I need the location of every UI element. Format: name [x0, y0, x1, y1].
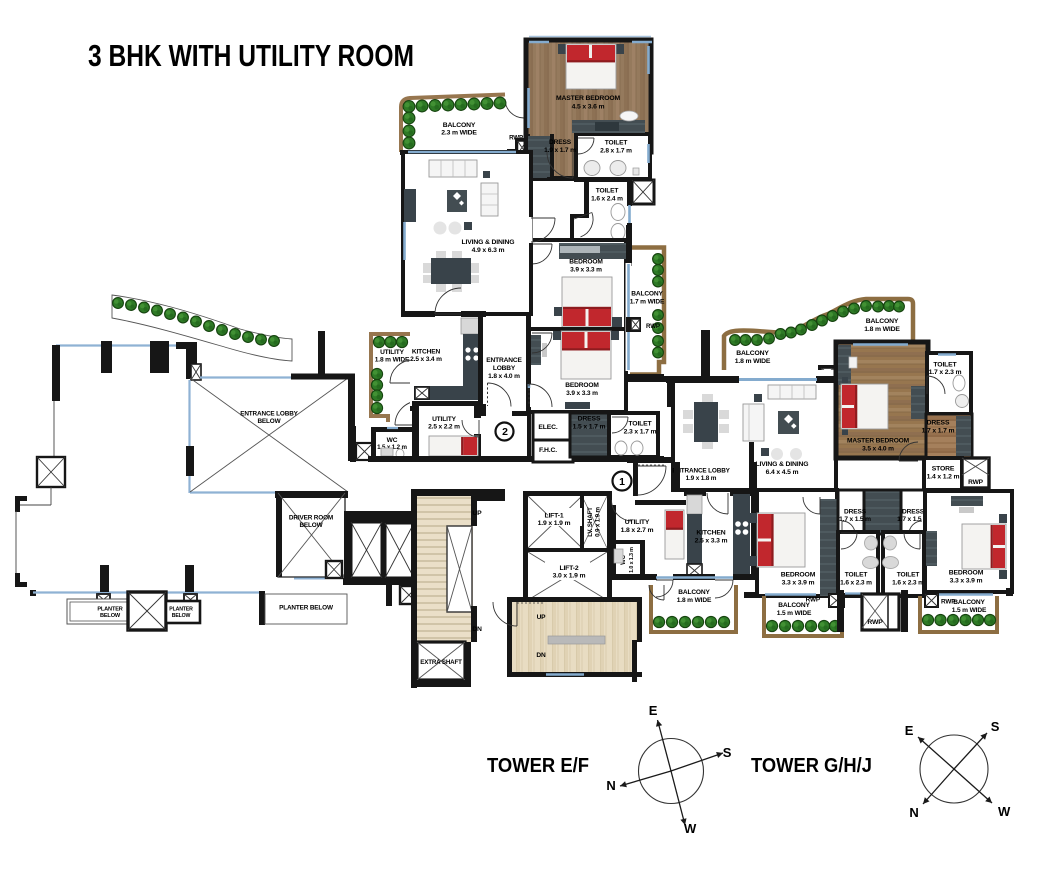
svg-text:1.5 m WIDE: 1.5 m WIDE: [952, 607, 987, 614]
svg-text:2.3 x 1.7 m: 2.3 x 1.7 m: [624, 429, 657, 436]
svg-text:RWP: RWP: [867, 619, 883, 626]
svg-text:TOILET: TOILET: [897, 572, 920, 579]
svg-text:WC: WC: [387, 437, 398, 444]
svg-text:3 BHK WITH UTILITY ROOM: 3 BHK WITH UTILITY ROOM: [88, 38, 414, 73]
svg-text:DRESS: DRESS: [549, 139, 572, 146]
svg-text:BALCONY: BALCONY: [866, 318, 899, 325]
svg-text:DRESS: DRESS: [927, 420, 950, 427]
svg-text:KITCHEN: KITCHEN: [412, 349, 441, 356]
svg-text:3.0 x 1.9 m: 3.0 x 1.9 m: [553, 573, 586, 580]
svg-text:EXTRA SHAFT: EXTRA SHAFT: [420, 659, 462, 666]
svg-text:ENTRANCE LOBBY: ENTRANCE LOBBY: [240, 411, 298, 418]
svg-text:1.6 x 2.3 m: 1.6 x 2.3 m: [892, 580, 924, 587]
svg-text:DRIVER ROOM: DRIVER ROOM: [289, 515, 333, 522]
svg-text:TOILET: TOILET: [628, 421, 652, 428]
svg-text:E: E: [649, 703, 658, 718]
svg-text:2.5 x 3.4 m: 2.5 x 3.4 m: [410, 356, 442, 363]
svg-text:BALCONY: BALCONY: [631, 291, 663, 298]
svg-text:W: W: [998, 804, 1011, 819]
svg-text:MASTER BEDROOM: MASTER BEDROOM: [847, 438, 910, 445]
svg-text:BEDROOM: BEDROOM: [949, 570, 984, 577]
svg-text:BELOW: BELOW: [299, 522, 323, 529]
svg-text:E: E: [905, 723, 914, 738]
svg-text:2.3 m WIDE: 2.3 m WIDE: [441, 130, 477, 137]
svg-text:1.5 m WIDE: 1.5 m WIDE: [777, 610, 812, 617]
svg-text:PLANTER: PLANTER: [97, 607, 122, 613]
svg-text:DRESS: DRESS: [902, 509, 925, 516]
svg-text:1: 1: [619, 476, 625, 488]
svg-text:3.5 x 4.0 m: 3.5 x 4.0 m: [862, 446, 894, 453]
svg-text:1.7 x 2.3 m: 1.7 x 2.3 m: [929, 369, 962, 376]
svg-text:UP: UP: [537, 614, 547, 621]
svg-text:6.4 x 4.5 m: 6.4 x 4.5 m: [766, 469, 799, 476]
svg-text:1.9 x 1.7 m: 1.9 x 1.7 m: [544, 147, 576, 154]
svg-text:1.8 m WIDE: 1.8 m WIDE: [677, 597, 712, 604]
svg-text:N: N: [909, 805, 918, 820]
svg-text:N: N: [606, 778, 615, 793]
svg-text:1.7 x 1.5 m: 1.7 x 1.5 m: [839, 516, 871, 523]
svg-text:3.9 x 3.3 m: 3.9 x 3.3 m: [570, 267, 602, 274]
svg-text:2.5 x 2.2 m: 2.5 x 2.2 m: [428, 424, 460, 431]
svg-text:BALCONY: BALCONY: [736, 350, 769, 357]
svg-text:TOILET: TOILET: [605, 140, 628, 147]
svg-text:1.7 m WIDE: 1.7 m WIDE: [630, 299, 665, 306]
svg-text:LIFT-1: LIFT-1: [544, 513, 563, 520]
svg-text:MASTER BEDROOM: MASTER BEDROOM: [556, 95, 620, 102]
svg-text:1.8 m WIDE: 1.8 m WIDE: [735, 358, 771, 365]
svg-text:BEDROOM: BEDROOM: [781, 572, 816, 579]
svg-text:LIVING & DINING: LIVING & DINING: [756, 461, 809, 468]
svg-text:KITCHEN: KITCHEN: [696, 530, 725, 537]
svg-text:3.3 x 3.9 m: 3.3 x 3.9 m: [950, 578, 983, 585]
svg-text:TOILET: TOILET: [933, 362, 957, 369]
svg-text:PLANTER: PLANTER: [169, 607, 193, 613]
svg-text:LOBBY: LOBBY: [493, 365, 516, 372]
svg-text:TOILET: TOILET: [845, 572, 868, 579]
svg-text:ENTRANCE LOBBY: ENTRANCE LOBBY: [672, 468, 730, 475]
svg-text:BEDROOM: BEDROOM: [565, 382, 599, 389]
svg-text:1.9 x 1.9 m: 1.9 x 1.9 m: [538, 520, 571, 527]
svg-text:DN: DN: [472, 626, 482, 633]
svg-text:W: W: [684, 821, 697, 836]
svg-text:PLANTER BELOW: PLANTER BELOW: [279, 605, 334, 612]
svg-text:LIVING & DINING: LIVING & DINING: [462, 239, 515, 246]
svg-text:UP: UP: [472, 510, 482, 517]
svg-text:4.9 x 6.3 m: 4.9 x 6.3 m: [472, 247, 505, 254]
svg-text:1.9 x 1.8 m: 1.9 x 1.8 m: [686, 475, 717, 482]
svg-text:3.3 x 3.9 m: 3.3 x 3.9 m: [782, 580, 815, 587]
svg-text:2.8 x 1.7 m: 2.8 x 1.7 m: [600, 148, 632, 155]
svg-text:ENTRANCE: ENTRANCE: [486, 357, 522, 364]
svg-text:1.6 x 2.4 m: 1.6 x 2.4 m: [591, 196, 623, 203]
svg-text:UTILITY: UTILITY: [432, 416, 457, 423]
svg-text:DRESS: DRESS: [578, 416, 601, 423]
svg-text:0.9 x 1.9 m: 0.9 x 1.9 m: [595, 507, 602, 537]
svg-text:UTILITY: UTILITY: [380, 349, 405, 356]
svg-text:DRESS: DRESS: [844, 509, 867, 516]
svg-text:1.8 x 4.0 m: 1.8 x 4.0 m: [488, 373, 520, 380]
svg-text:2: 2: [502, 426, 508, 438]
svg-text:4.5 x 3.6 m: 4.5 x 3.6 m: [572, 104, 605, 111]
svg-text:BALCONY: BALCONY: [953, 599, 985, 606]
svg-text:S: S: [723, 745, 732, 760]
svg-text:LIFT-2: LIFT-2: [559, 565, 578, 572]
svg-text:RWP: RWP: [968, 479, 984, 486]
svg-text:TOILET: TOILET: [596, 188, 619, 195]
svg-text:RWP: RWP: [806, 597, 821, 604]
svg-text:1.7 x 1.7 m: 1.7 x 1.7 m: [922, 428, 955, 435]
svg-text:DN: DN: [536, 652, 546, 659]
svg-text:BEDROOM: BEDROOM: [569, 259, 603, 266]
svg-text:F.H.C.: F.H.C.: [539, 447, 557, 454]
svg-text:BALCONY: BALCONY: [678, 589, 710, 596]
svg-text:BELOW: BELOW: [100, 613, 121, 619]
svg-text:3.9 x 3.3 m: 3.9 x 3.3 m: [566, 390, 598, 397]
svg-text:RWP: RWP: [941, 599, 956, 606]
svg-text:BELOW: BELOW: [257, 418, 281, 425]
svg-text:S: S: [991, 719, 1000, 734]
svg-text:1.6 x 2.3 m: 1.6 x 2.3 m: [840, 580, 872, 587]
svg-text:UTILITY: UTILITY: [625, 519, 650, 526]
svg-text:1.4 x 1.2 m: 1.4 x 1.2 m: [927, 474, 960, 481]
svg-text:RWP: RWP: [646, 323, 660, 330]
svg-text:1.8 m WIDE: 1.8 m WIDE: [864, 326, 900, 333]
svg-text:TOWER E/F: TOWER E/F: [487, 754, 589, 777]
svg-text:1.5 x 1.7 m: 1.5 x 1.7 m: [573, 424, 606, 431]
svg-text:1.0 x 1.3 m: 1.0 x 1.3 m: [629, 547, 635, 573]
svg-text:1.8 x 2.7 m: 1.8 x 2.7 m: [621, 527, 654, 534]
svg-text:ELEC.: ELEC.: [538, 424, 558, 431]
svg-text:TOWER G/H/J: TOWER G/H/J: [751, 754, 872, 777]
svg-text:1.8 m WIDE: 1.8 m WIDE: [375, 357, 410, 364]
svg-text:BALCONY: BALCONY: [443, 122, 476, 129]
svg-text:BELOW: BELOW: [172, 613, 191, 619]
svg-text:STORE: STORE: [932, 466, 955, 473]
svg-text:LV. SHAFT: LV. SHAFT: [587, 507, 594, 537]
svg-text:2.5 x 3.3 m: 2.5 x 3.3 m: [695, 538, 728, 545]
